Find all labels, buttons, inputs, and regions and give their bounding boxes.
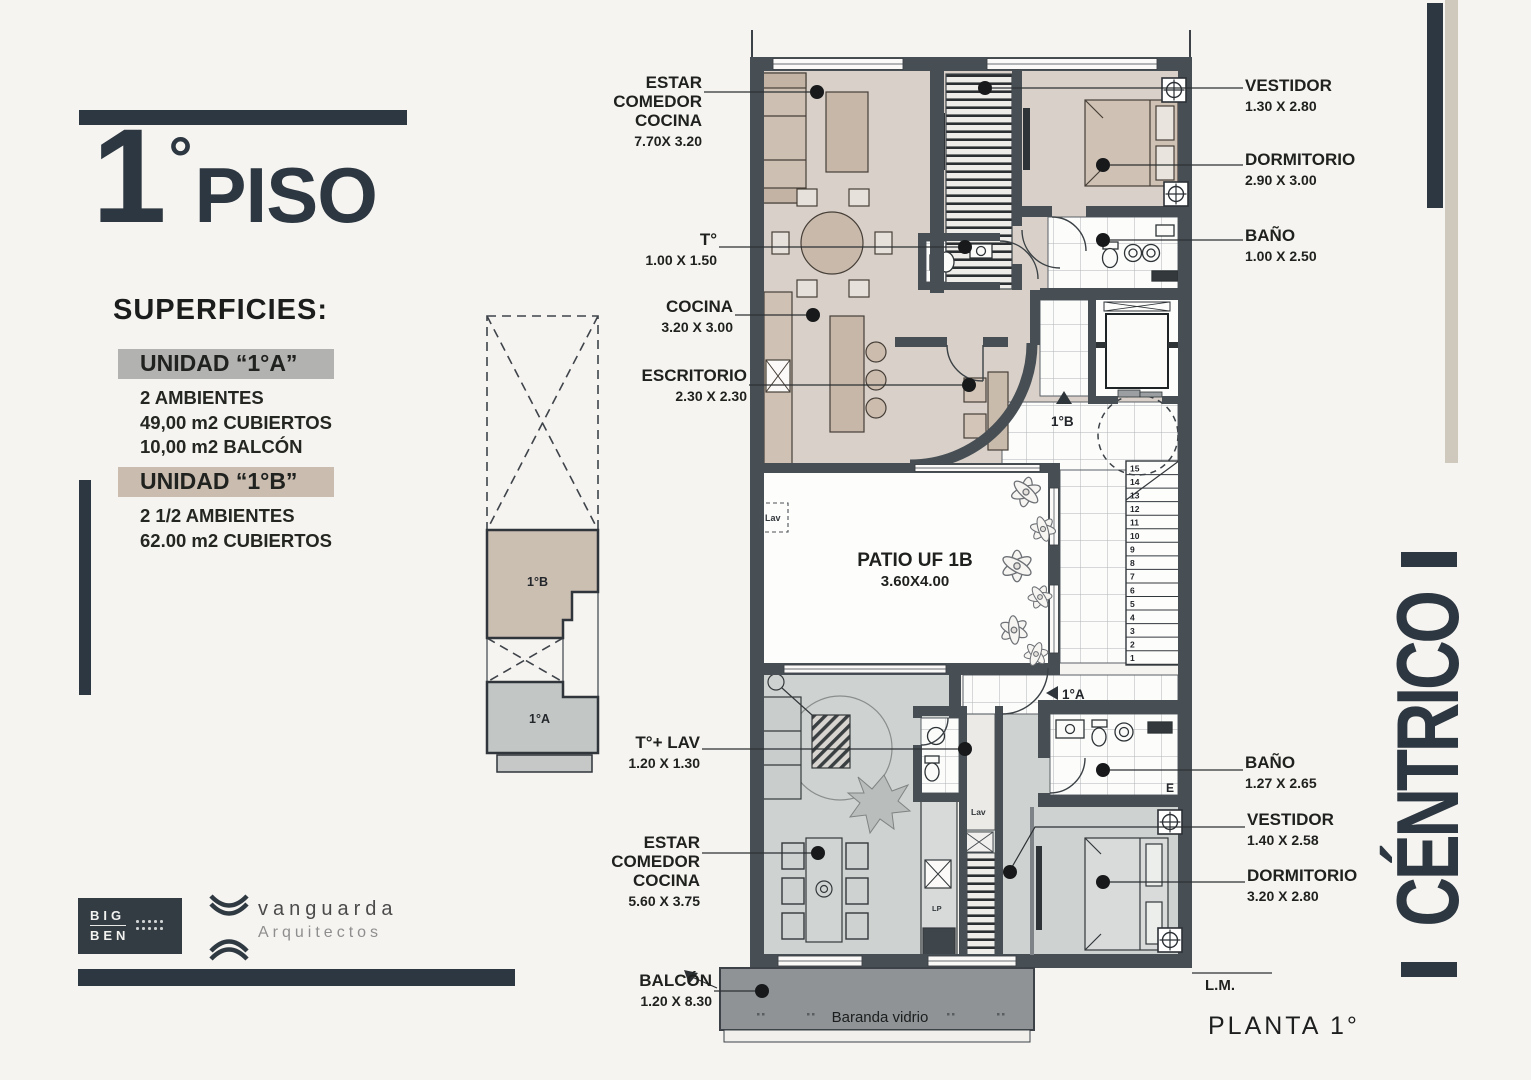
label-bano-1a: BAÑO 1.27 X 2.65 [1245,753,1317,791]
bottom-accent-bar [78,969,515,986]
elevator [1096,300,1178,397]
svg-text:5: 5 [1130,599,1135,609]
bigben-top-text: BIG [90,907,125,925]
lav-closet-label: Lav [971,807,986,817]
centrico-text: CÉNTRICO [1377,593,1479,926]
left-accent-bar [79,480,91,695]
label-vestidor-1a: VESTIDOR 1.40 X 2.58 [1247,810,1334,848]
keyplan-unit-b: 1°B [527,575,548,589]
unit-a-header: UNIDAD “1°A” [118,349,334,379]
centrico-banner: CÉNTRICO [1376,545,1480,975]
label-cocina-1b: COCINA 3.20 X 3.00 [613,297,733,335]
svg-text:12: 12 [1130,504,1140,514]
svg-text:4: 4 [1130,612,1135,622]
planta-label: PLANTA 1° [1208,1012,1360,1041]
e-mark: E [1166,781,1174,795]
label-vestidor-1b: VESTIDOR 1.30 X 2.80 [1245,76,1332,114]
title-degree: ° [169,124,193,193]
label-bano-1b: BAÑO 1.00 X 2.50 [1245,226,1317,264]
svg-text:8: 8 [1130,558,1135,568]
centrico-bottom-bar [1401,962,1457,977]
bigben-dots [136,920,176,932]
lav-patio-label: Lav [765,513,781,523]
label-dormitorio-1b: DORMITORIO 2.90 X 3.00 [1245,150,1355,188]
unit-b-summary: UNIDAD “1°B” 2 1/2 AMBIENTES 62.00 m2 CU… [118,467,334,553]
label-balcon: BALCÓN 1.20 X 8.30 [592,971,712,1009]
title-word: PISO [195,150,377,241]
unit-b-line: 62.00 m2 CUBIERTOS [140,529,334,554]
label-estar-1a: ESTAR COMEDOR COCINA 5.60 X 3.75 [580,833,700,909]
label-t-lav-1a: T°+ LAV 1.20 X 1.30 [580,733,700,771]
svg-text:6: 6 [1130,585,1135,595]
svg-text:2: 2 [1130,640,1135,650]
property-ticks [752,30,1190,57]
lp-label: LP [932,904,942,913]
svg-text:10: 10 [1130,531,1140,541]
vanguarda-wave-icon [211,896,247,959]
unit-b-line: 2 1/2 AMBIENTES [140,504,334,529]
svg-text:14: 14 [1130,477,1140,487]
unit-a-line: 10,00 m2 BALCÓN [140,435,334,460]
balcony: Baranda vidrio [720,968,1034,1042]
svg-text:13: 13 [1130,490,1140,500]
superficies-heading: SUPERFICIES: [113,294,328,327]
title-digit: 1 [92,122,163,232]
unit-a-line: 2 AMBIENTES [140,386,334,411]
stairs: 123456789101112131415 [1126,455,1187,665]
label-dormitorio-1a: DORMITORIO 3.20 X 2.80 [1247,866,1357,904]
baranda-label: Baranda vidrio [832,1009,929,1026]
svg-text:11: 11 [1130,518,1139,528]
svg-text:1: 1 [1130,653,1135,663]
unit-a-summary: UNIDAD “1°A” 2 AMBIENTES 49,00 m2 CUBIER… [118,349,334,460]
lm-label: L.M. [1205,977,1235,994]
label-estar-1b: ESTAR COMEDOR COCINA 7.70X 3.20 [582,73,702,149]
centrico-top-bar [1401,552,1457,567]
unit-b-entry-label: 1°B [1051,414,1074,429]
svg-text:15: 15 [1130,463,1140,473]
right-tan-bar [1445,0,1458,463]
unit-a-line: 49,00 m2 CUBIERTOS [140,411,334,436]
svg-text:7: 7 [1130,572,1135,582]
label-t-1b: T° 1.00 X 1.50 [597,230,717,268]
keyplan-unit-a: 1°A [529,712,550,726]
vanguarda-name: vanguarda [258,898,398,921]
bigben-logo: BIG BEN [78,898,182,954]
unit-b-header: UNIDAD “1°B” [118,467,334,497]
bigben-bottom-text: BEN [90,927,129,945]
keyplan: 1°B 1°A [487,316,598,772]
vanguarda-sub: Arquitectos [258,924,382,942]
svg-text:9: 9 [1130,545,1135,555]
right-dark-bar [1427,3,1443,208]
bigben-divider [90,925,126,926]
label-patio: PATIO UF 1B 3.60X4.00 [830,551,1000,590]
floorplan-sheet: 123456789101112131415 [0,0,1531,1080]
label-escritorio-1b: ESCRITORIO 2.30 X 2.30 [627,366,747,404]
unit-a-entry-label: 1°A [1062,687,1085,702]
page-title: 1 ° PISO [92,122,377,241]
svg-text:3: 3 [1130,626,1135,636]
